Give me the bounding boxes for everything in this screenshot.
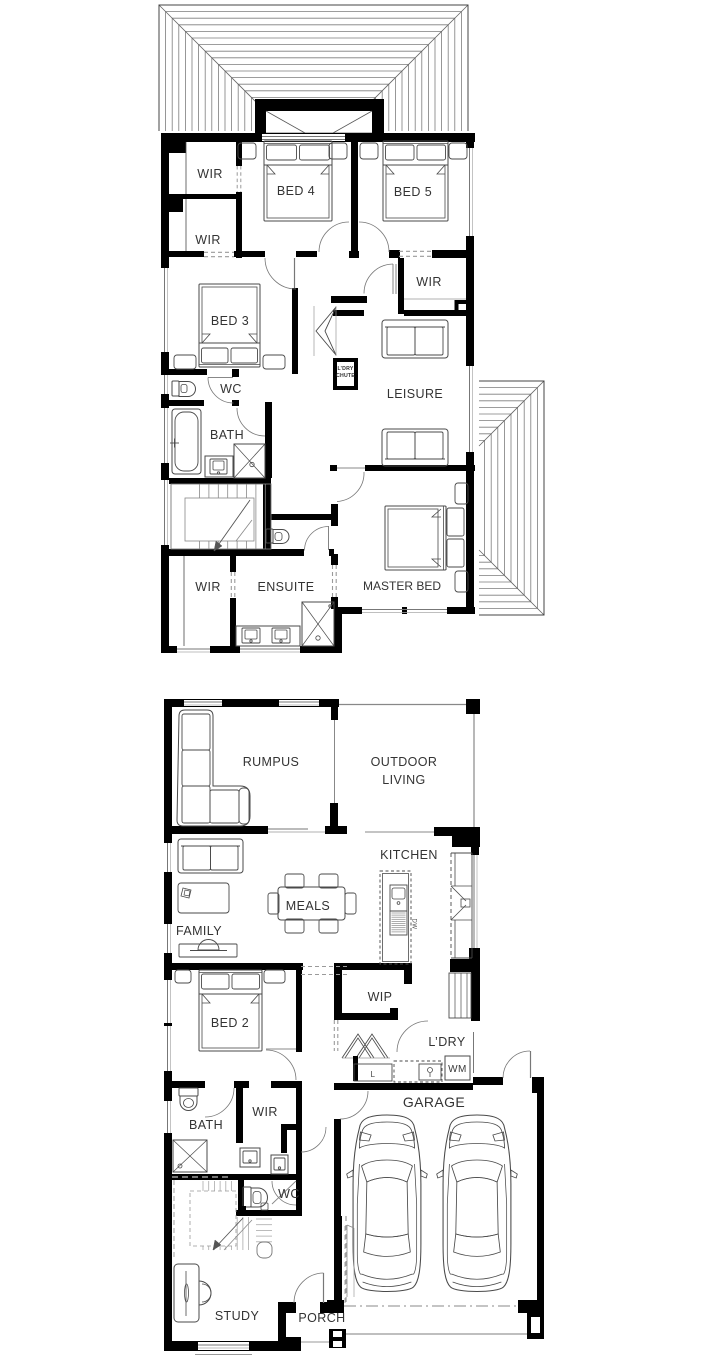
svg-text:MASTER BED: MASTER BED — [363, 579, 441, 593]
svg-text:FAMILY: FAMILY — [176, 924, 222, 938]
svg-text:WIR: WIR — [416, 275, 442, 289]
svg-text:L’DRY: L’DRY — [428, 1035, 465, 1049]
svg-text:BED 2: BED 2 — [211, 1016, 249, 1030]
svg-text:WIR: WIR — [252, 1105, 278, 1119]
svg-text:OUTDOOR: OUTDOOR — [371, 755, 438, 769]
svg-text:WC: WC — [278, 1187, 300, 1201]
svg-text:STUDY: STUDY — [215, 1309, 260, 1323]
svg-text:KITCHEN: KITCHEN — [380, 848, 438, 862]
svg-text:MEALS: MEALS — [286, 899, 330, 913]
svg-text:BED 3: BED 3 — [211, 314, 249, 328]
svg-text:BATH: BATH — [189, 1118, 223, 1132]
svg-text:WIR: WIR — [197, 167, 223, 181]
svg-text:WIR: WIR — [195, 580, 221, 594]
svg-text:DW: DW — [411, 919, 417, 930]
svg-text:LEISURE: LEISURE — [387, 387, 443, 401]
svg-text:BED 4: BED 4 — [277, 184, 315, 198]
svg-text:PORCH: PORCH — [298, 1311, 345, 1325]
svg-text:GARAGE: GARAGE — [403, 1094, 465, 1110]
svg-text:LIVING: LIVING — [382, 773, 425, 787]
svg-text:ENSUITE: ENSUITE — [258, 580, 315, 594]
svg-text:L: L — [371, 1070, 376, 1079]
svg-text:BED 5: BED 5 — [394, 185, 432, 199]
svg-text:BATH: BATH — [210, 428, 244, 442]
svg-text:CHUTE: CHUTE — [336, 373, 355, 379]
svg-text:WM: WM — [448, 1064, 467, 1075]
svg-text:L’DRY: L’DRY — [337, 366, 353, 372]
svg-text:WC: WC — [220, 382, 242, 396]
svg-text:RUMPUS: RUMPUS — [243, 755, 300, 769]
svg-text:WIP: WIP — [368, 990, 393, 1004]
svg-text:WIR: WIR — [195, 233, 221, 247]
